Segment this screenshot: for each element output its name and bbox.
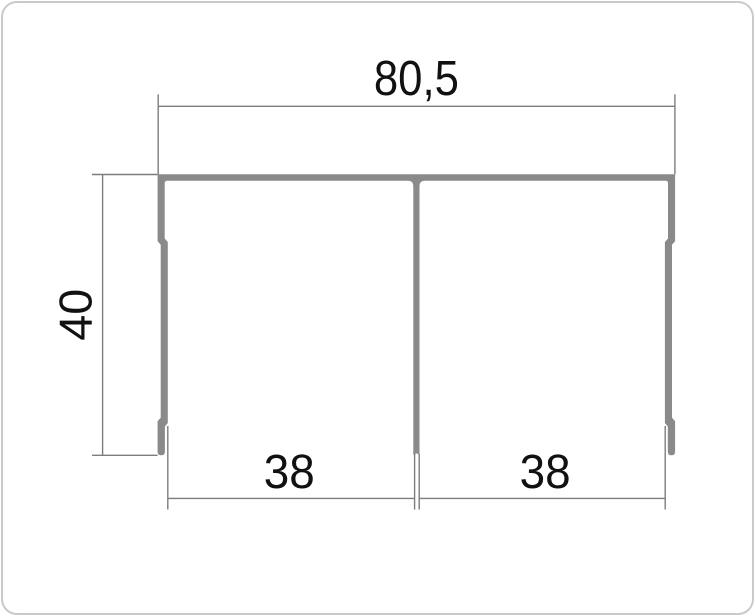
svg-text:38: 38 [520,446,571,499]
svg-text:40: 40 [50,289,102,341]
svg-text:38: 38 [264,446,315,499]
svg-text:80,5: 80,5 [374,52,459,106]
